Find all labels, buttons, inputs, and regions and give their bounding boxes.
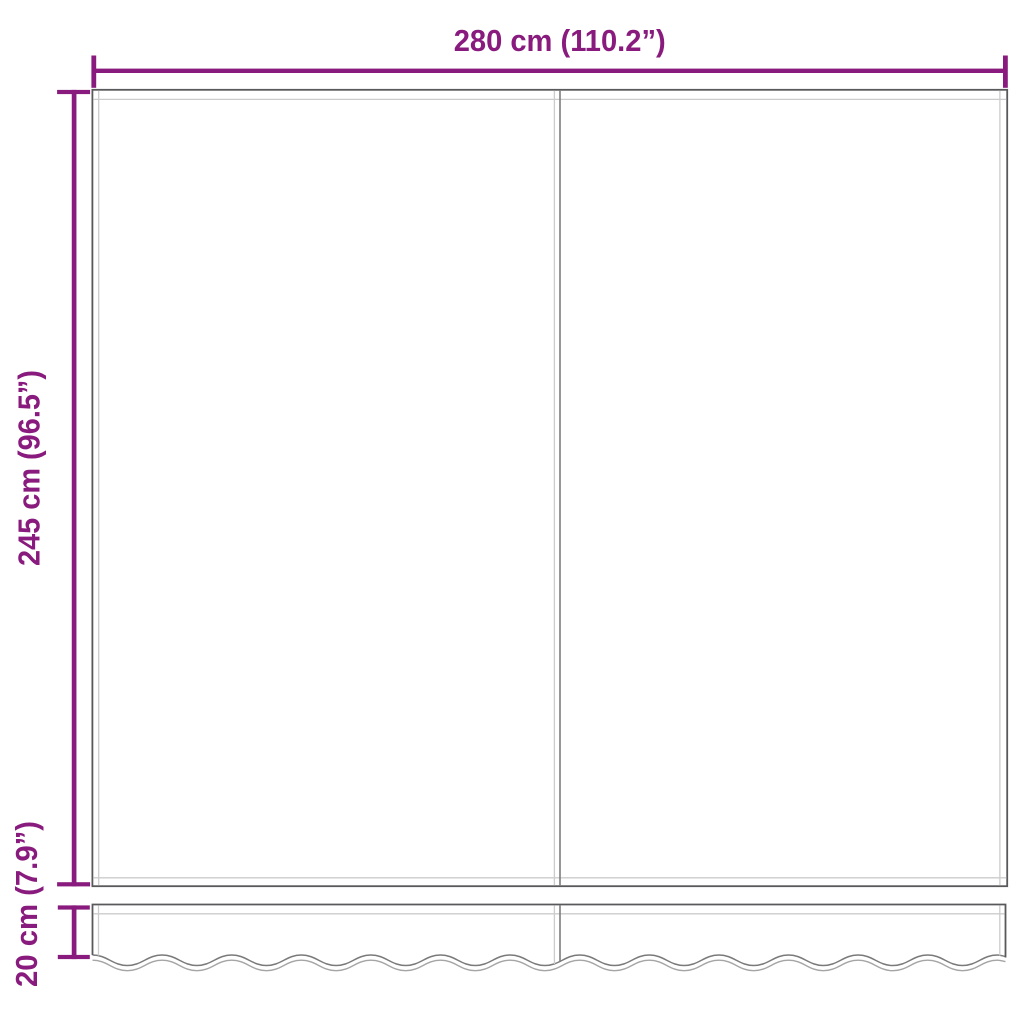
svg-text:245 cm (96.5”): 245 cm (96.5”) xyxy=(12,370,47,566)
svg-text:20 cm (7.9”): 20 cm (7.9”) xyxy=(9,821,44,987)
svg-text:280 cm (110.2”): 280 cm (110.2”) xyxy=(454,23,666,58)
